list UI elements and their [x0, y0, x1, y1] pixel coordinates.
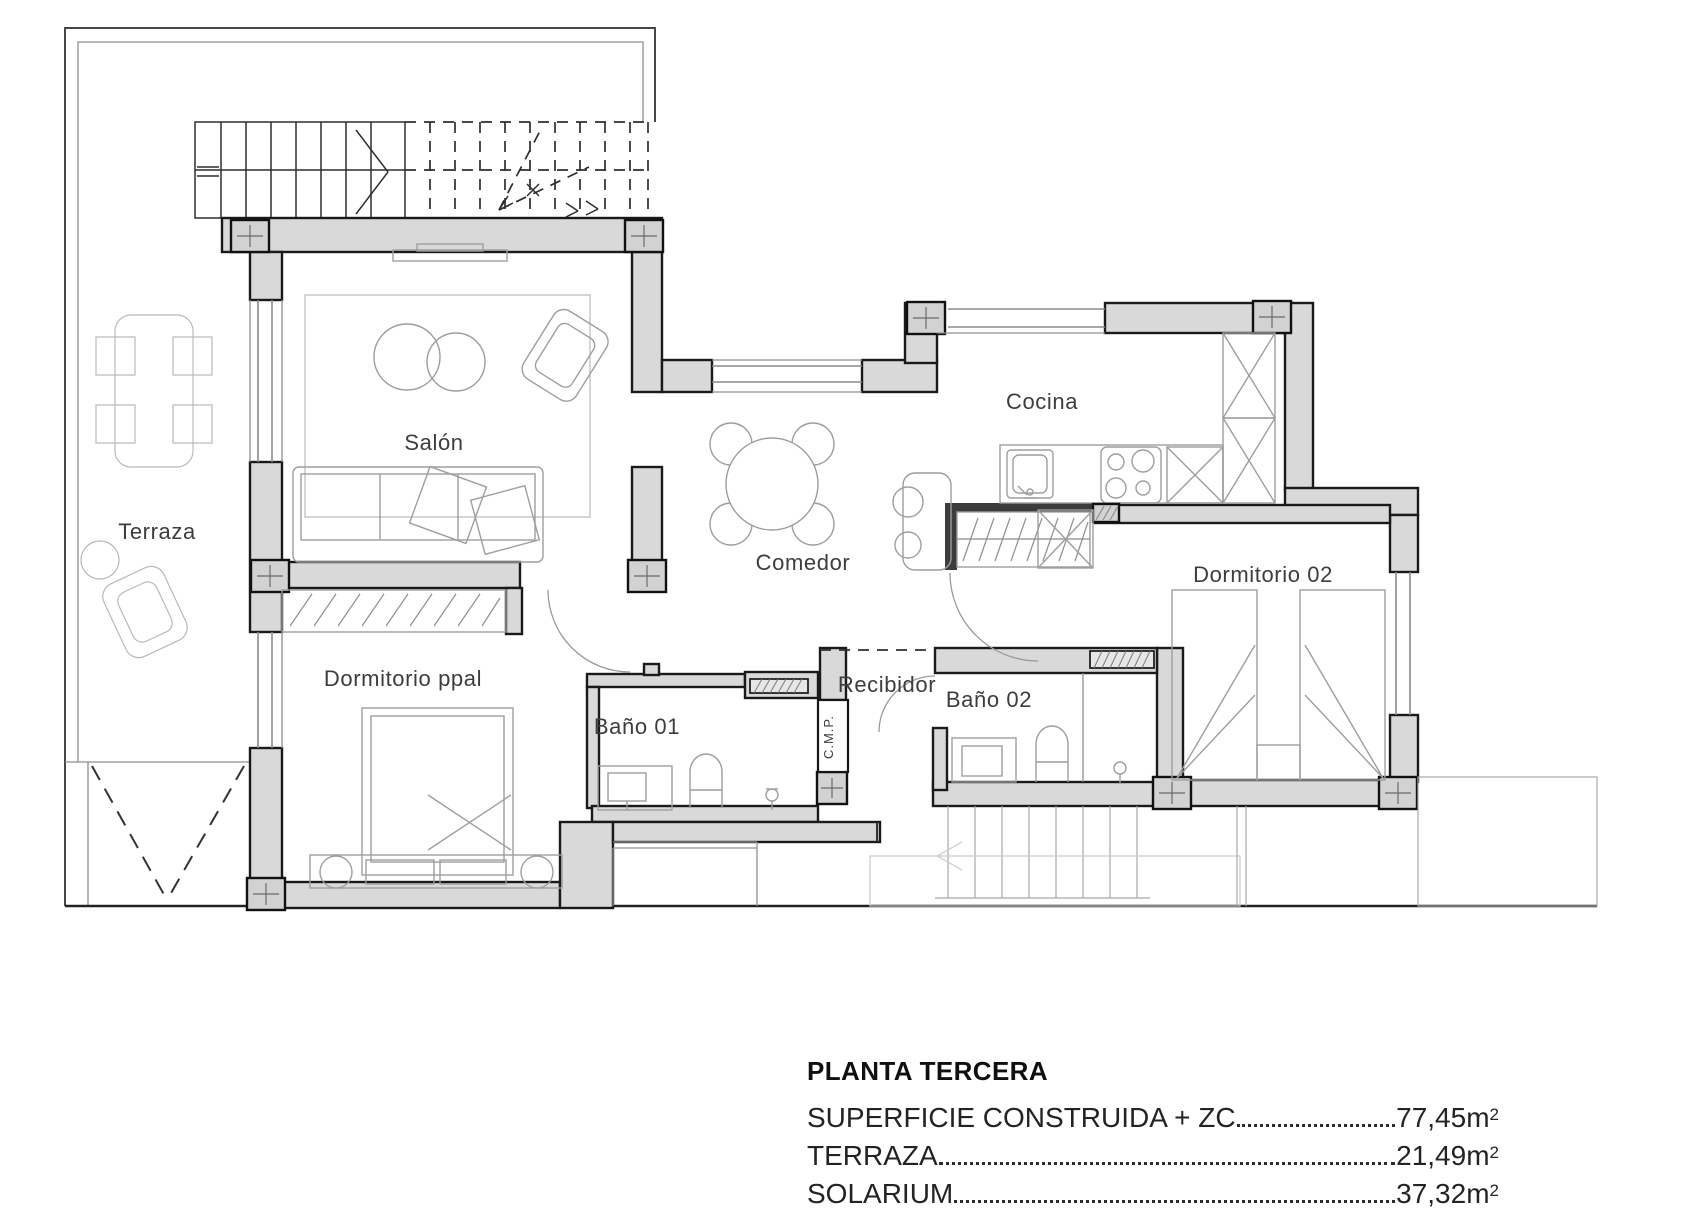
legend-sup: 2 [1490, 1144, 1499, 1161]
label-recibidor: Recibidor [838, 672, 936, 697]
dormitorio02-furniture [1172, 590, 1385, 780]
legend-label: SUPERFICIE CONSTRUIDA + ZC [807, 1102, 1236, 1134]
legend-row-terraza: TERRAZA 21,49m2 [807, 1134, 1499, 1172]
legend-unit: m [1466, 1102, 1489, 1134]
dot-leader [954, 1200, 1395, 1203]
stairs-upper [195, 122, 648, 218]
legend-value: 37,32 [1396, 1178, 1466, 1210]
label-bano02: Baño 02 [946, 687, 1032, 712]
label-terraza: Terraza [118, 519, 196, 544]
legend-sup: 2 [1490, 1182, 1499, 1199]
legend-sup: 2 [1490, 1106, 1499, 1123]
legend-label: SOLARIUM [807, 1178, 953, 1210]
label-dormitorio-ppal: Dormitorio ppal [324, 666, 482, 691]
legend-value: 77,45 [1396, 1102, 1466, 1134]
floor-plan-canvas: Terraza Salón Cocina Comedor Dormitorio … [0, 0, 1700, 1223]
floor-plan-page: Terraza Salón Cocina Comedor Dormitorio … [0, 0, 1700, 1223]
label-salon: Salón [404, 430, 463, 455]
label-dormitorio02: Dormitorio 02 [1193, 562, 1333, 587]
legend-label: TERRAZA [807, 1140, 938, 1172]
terraza-furniture [81, 315, 212, 662]
legend-row-solarium: SOLARIUM 37,32m2 [807, 1172, 1499, 1210]
kitchen-bar [893, 473, 1090, 570]
area-legend: PLANTA TERCERA SUPERFICIE CONSTRUIDA + Z… [807, 1056, 1499, 1210]
label-comedor: Comedor [756, 550, 851, 575]
legend-value: 21,49 [1396, 1140, 1466, 1172]
legend-unit: m [1466, 1140, 1489, 1172]
legend-title: PLANTA TERCERA [807, 1056, 1499, 1087]
dot-leader [1237, 1124, 1396, 1127]
legend-row-superficie: SUPERFICIE CONSTRUIDA + ZC 77,45m2 [807, 1096, 1499, 1134]
label-cmp: C.M.P. [821, 715, 836, 759]
label-bano01: Baño 01 [594, 714, 680, 739]
legend-unit: m [1466, 1178, 1489, 1210]
comedor-furniture [710, 423, 834, 545]
salon-furniture [293, 244, 613, 562]
label-cocina: Cocina [1006, 389, 1078, 414]
cocina-fixtures [1000, 333, 1275, 522]
dot-leader [939, 1162, 1395, 1165]
